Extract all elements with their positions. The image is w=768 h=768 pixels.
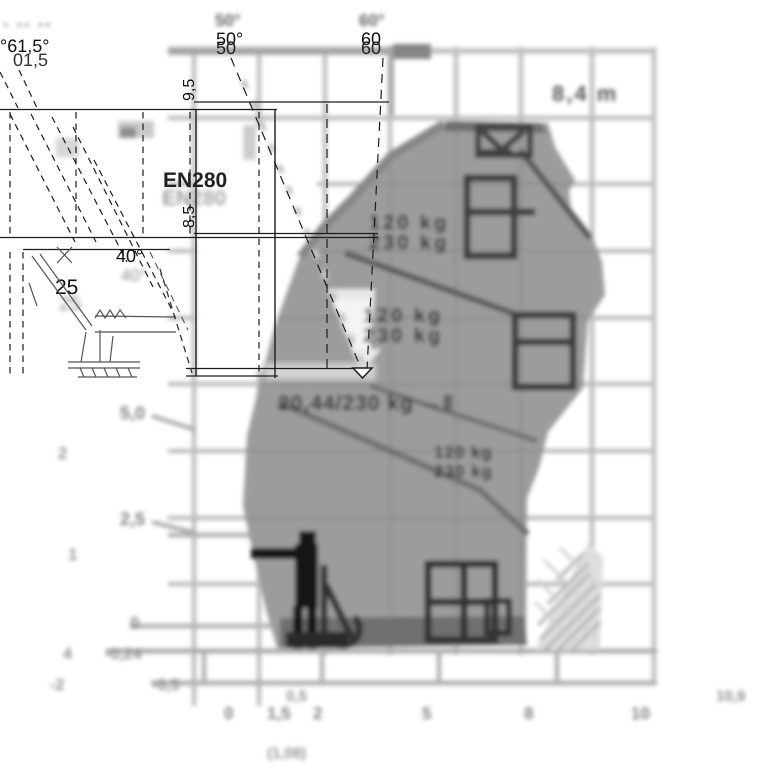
svg-text:5: 5 bbox=[422, 704, 431, 723]
svg-text:120 kg: 120 kg bbox=[369, 212, 449, 234]
svg-text:230 kg: 230 kg bbox=[369, 232, 449, 254]
svg-text:-2: -2 bbox=[50, 677, 64, 694]
svg-text:50: 50 bbox=[216, 38, 236, 58]
svg-text:40°: 40° bbox=[116, 246, 143, 266]
svg-text:8: 8 bbox=[524, 704, 533, 723]
svg-text:10,9: 10,9 bbox=[716, 688, 745, 705]
svg-text:50°: 50° bbox=[215, 11, 241, 30]
svg-text:20,44/230 kg →‖: 20,44/230 kg →‖ bbox=[278, 392, 454, 415]
svg-text:120 kg: 120 kg bbox=[363, 305, 443, 327]
svg-text:0,5: 0,5 bbox=[286, 688, 307, 705]
svg-text:8,4 m: 8,4 m bbox=[552, 81, 618, 106]
svg-text:5,0: 5,0 bbox=[120, 403, 145, 423]
svg-text:40°: 40° bbox=[121, 266, 147, 285]
svg-text:60: 60 bbox=[361, 38, 381, 58]
svg-text:10: 10 bbox=[631, 704, 650, 723]
svg-text:2,5: 2,5 bbox=[120, 509, 145, 529]
svg-text:1,5: 1,5 bbox=[267, 704, 291, 723]
svg-text:4: 4 bbox=[63, 646, 72, 663]
svg-text:(1,08): (1,08) bbox=[267, 745, 306, 762]
svg-text:60°: 60° bbox=[359, 11, 385, 30]
svg-text:230 kg: 230 kg bbox=[363, 325, 443, 347]
svg-text:- -- --: - -- -- bbox=[3, 16, 53, 33]
svg-text:0: 0 bbox=[224, 704, 233, 723]
svg-text:120 kg: 120 kg bbox=[434, 443, 493, 462]
svg-text:8,5: 8,5 bbox=[181, 206, 198, 228]
svg-text:230 kg: 230 kg bbox=[434, 462, 493, 481]
svg-text:01,5: 01,5 bbox=[13, 50, 48, 70]
svg-text:9,5: 9,5 bbox=[181, 79, 198, 101]
svg-text:-0,24: -0,24 bbox=[105, 646, 142, 663]
svg-text:EN280: EN280 bbox=[163, 169, 227, 192]
svg-text:-0,5: -0,5 bbox=[152, 677, 180, 694]
svg-text:1: 1 bbox=[68, 545, 77, 564]
svg-text:2: 2 bbox=[58, 444, 67, 463]
svg-text:0: 0 bbox=[130, 614, 139, 633]
svg-text:2: 2 bbox=[313, 704, 322, 723]
